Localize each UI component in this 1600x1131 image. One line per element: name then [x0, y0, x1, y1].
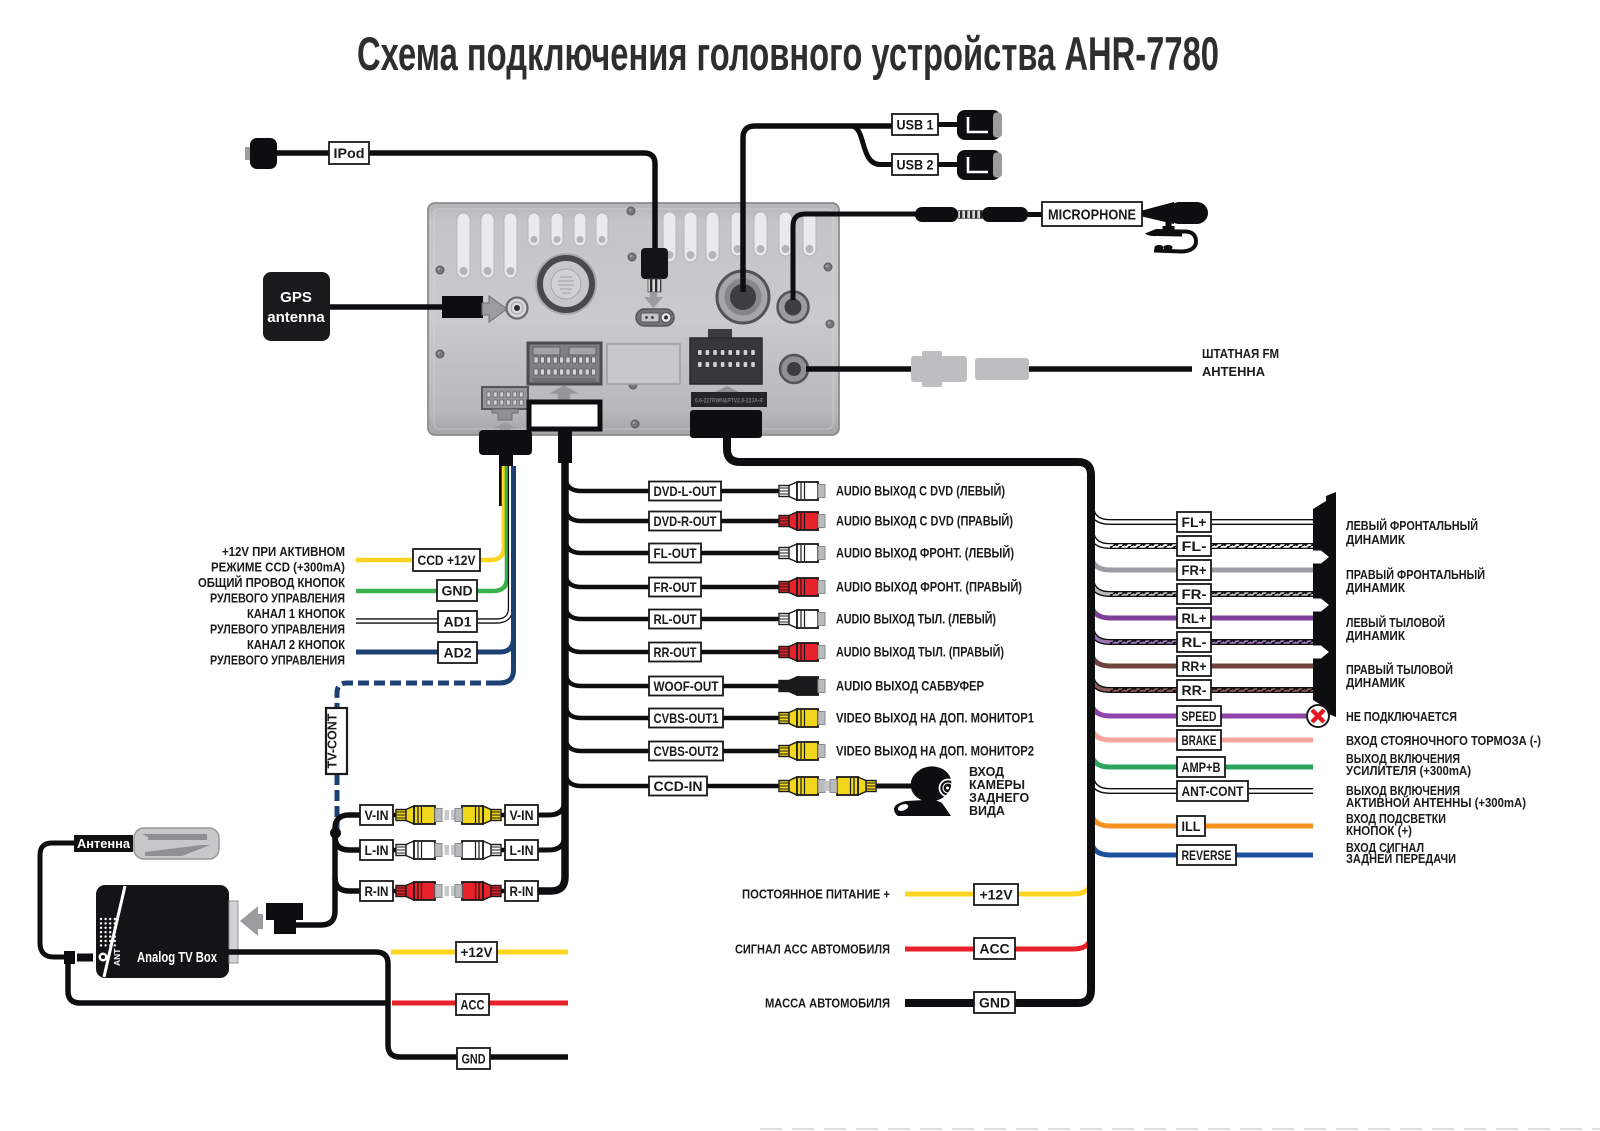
- svg-text:FR-: FR-: [1182, 586, 1207, 602]
- svg-text:AUDIO ВЫХОД С DVD (ЛЕВЫЙ): AUDIO ВЫХОД С DVD (ЛЕВЫЙ): [836, 484, 1005, 499]
- svg-text:ACC: ACC: [979, 941, 1009, 957]
- svg-text:VIDEO ВЫХОД НА ДОП. МОНИТОР1: VIDEO ВЫХОД НА ДОП. МОНИТОР1: [836, 711, 1034, 726]
- svg-text:FL-OUT: FL-OUT: [654, 545, 697, 561]
- svg-text:ОБЩИЙ ПРОВОД КНОПОК: ОБЩИЙ ПРОВОД КНОПОК: [198, 575, 345, 590]
- svg-text:ВХОД СТОЯНОЧНОГО ТОРМОЗА (-): ВХОД СТОЯНОЧНОГО ТОРМОЗА (-): [1346, 734, 1541, 748]
- svg-text:ILL: ILL: [1182, 818, 1201, 834]
- svg-text:FL-: FL-: [1182, 538, 1207, 554]
- svg-text:РУЛЕВОГО УПРАВЛЕНИЯ: РУЛЕВОГО УПРАВЛЕНИЯ: [210, 592, 345, 606]
- svg-text:ACC: ACC: [461, 997, 485, 1013]
- svg-text:FL+: FL+: [1182, 514, 1207, 530]
- svg-text:CCD +12V: CCD +12V: [418, 552, 477, 568]
- svg-text:DVD-L-OUT: DVD-L-OUT: [654, 483, 717, 499]
- svg-text:CCD-IN: CCD-IN: [654, 778, 703, 794]
- svg-text:RR-OUT: RR-OUT: [654, 644, 697, 660]
- svg-text:AUDIO ВЫХОД САБВУФЕР: AUDIO ВЫХОД САБВУФЕР: [836, 679, 984, 694]
- svg-text:AUDIO ВЫХОД ФРОНТ. (ЛЕВЫЙ): AUDIO ВЫХОД ФРОНТ. (ЛЕВЫЙ): [836, 546, 1014, 561]
- svg-text:СИГНАЛ ACC АВТОМОБИЛЯ: СИГНАЛ ACC АВТОМОБИЛЯ: [735, 942, 890, 957]
- svg-text:0.6-227RWN&PTV2.0-223A-R: 0.6-227RWN&PTV2.0-223A-R: [695, 399, 764, 405]
- svg-text:ДИНАМИК: ДИНАМИК: [1346, 629, 1405, 643]
- svg-text:ЗАДНЕЙ ПЕРЕДАЧИ: ЗАДНЕЙ ПЕРЕДАЧИ: [1346, 851, 1456, 866]
- svg-text:RL+: RL+: [1182, 610, 1207, 626]
- svg-text:SPEED: SPEED: [1182, 708, 1217, 724]
- svg-text:+12V: +12V: [461, 944, 494, 960]
- svg-text:antenna: antenna: [267, 309, 325, 326]
- svg-text:ПРАВЫЙ ТЫЛОВОЙ: ПРАВЫЙ ТЫЛОВОЙ: [1346, 662, 1453, 677]
- svg-text:ВИДА: ВИДА: [969, 804, 1005, 818]
- svg-text:USB 2: USB 2: [897, 157, 934, 173]
- svg-text:AUDIO ВЫХОД ТЫЛ. (ПРАВЫЙ): AUDIO ВЫХОД ТЫЛ. (ПРАВЫЙ): [836, 645, 1004, 660]
- svg-text:GND: GND: [462, 1051, 486, 1067]
- svg-text:ПОСТОЯННОЕ ПИТАНИЕ +: ПОСТОЯННОЕ ПИТАНИЕ +: [742, 887, 890, 902]
- svg-text:КНОПОК (+): КНОПОК (+): [1346, 824, 1412, 838]
- svg-text:FR-OUT: FR-OUT: [654, 579, 697, 595]
- svg-text:+12V: +12V: [979, 887, 1013, 903]
- svg-text:AUDIO ВЫХОД ТЫЛ. (ЛЕВЫЙ): AUDIO ВЫХОД ТЫЛ. (ЛЕВЫЙ): [836, 612, 996, 627]
- svg-text:DVD-R-OUT: DVD-R-OUT: [654, 513, 717, 529]
- svg-text:L-IN: L-IN: [510, 842, 534, 858]
- svg-text:RL-OUT: RL-OUT: [654, 611, 697, 627]
- svg-text:V-IN: V-IN: [365, 807, 389, 823]
- svg-text:MICROPHONE: MICROPHONE: [1048, 206, 1136, 223]
- svg-text:Схема подключения головного ус: Схема подключения головного устройства A…: [357, 27, 1219, 80]
- svg-text:РЕЖИМЕ CCD (+300mA): РЕЖИМЕ CCD (+300mA): [211, 561, 345, 575]
- svg-text:Антенна: Антенна: [77, 836, 131, 851]
- svg-text:GND: GND: [441, 583, 472, 599]
- svg-text:TV-CONT: TV-CONT: [326, 713, 340, 768]
- svg-text:ДИНАМИК: ДИНАМИК: [1346, 581, 1405, 595]
- svg-text:GND: GND: [979, 995, 1010, 1011]
- svg-text:КАНАЛ 1 КНОПОК: КАНАЛ 1 КНОПОК: [247, 607, 345, 621]
- svg-text:AUDIO ВЫХОД ФРОНТ. (ПРАВЫЙ): AUDIO ВЫХОД ФРОНТ. (ПРАВЫЙ): [836, 580, 1022, 595]
- svg-text:VIDEO ВЫХОД НА ДОП. МОНИТОР2: VIDEO ВЫХОД НА ДОП. МОНИТОР2: [836, 744, 1034, 759]
- svg-text:ЗАДНЕГО: ЗАДНЕГО: [969, 791, 1030, 805]
- svg-text:AUDIO ВЫХОД С DVD (ПРАВЫЙ): AUDIO ВЫХОД С DVD (ПРАВЫЙ): [836, 514, 1013, 529]
- svg-text:АНТЕННА: АНТЕННА: [1202, 365, 1265, 379]
- svg-text:BRAKE: BRAKE: [1182, 732, 1217, 748]
- svg-text:CVBS-OUT2: CVBS-OUT2: [654, 743, 719, 759]
- svg-text:L-IN: L-IN: [365, 842, 389, 858]
- svg-text:AMP+B: AMP+B: [1182, 759, 1221, 775]
- svg-text:WOOF-OUT: WOOF-OUT: [654, 678, 719, 694]
- svg-text:ШТАТНАЯ FM: ШТАТНАЯ FM: [1202, 347, 1279, 361]
- svg-text:+12V ПРИ АКТИВНОМ: +12V ПРИ АКТИВНОМ: [222, 545, 345, 559]
- svg-text:КАМЕРЫ: КАМЕРЫ: [969, 778, 1025, 792]
- svg-text:FR+: FR+: [1182, 562, 1207, 578]
- svg-text:АКТИВНОЙ АНТЕННЫ (+300mA): АКТИВНОЙ АНТЕННЫ (+300mA): [1346, 795, 1526, 810]
- svg-text:AD2: AD2: [443, 645, 471, 661]
- svg-text:ANT: ANT: [112, 948, 122, 966]
- svg-text:РУЛЕВОГО УПРАВЛЕНИЯ: РУЛЕВОГО УПРАВЛЕНИЯ: [210, 654, 345, 668]
- svg-text:ANT-CONT: ANT-CONT: [1182, 783, 1244, 799]
- svg-text:ДИНАМИК: ДИНАМИК: [1346, 676, 1405, 690]
- svg-text:НЕ ПОДКЛЮЧАЕТСЯ: НЕ ПОДКЛЮЧАЕТСЯ: [1346, 710, 1457, 724]
- svg-text:УСИЛИТЕЛЯ (+300mA): УСИЛИТЕЛЯ (+300mA): [1346, 764, 1471, 778]
- svg-text:GPS: GPS: [280, 289, 312, 306]
- svg-text:Analog TV Box: Analog TV Box: [137, 950, 217, 966]
- svg-text:RR+: RR+: [1182, 658, 1207, 674]
- svg-text:РУЛЕВОГО УПРАВЛЕНИЯ: РУЛЕВОГО УПРАВЛЕНИЯ: [210, 623, 345, 637]
- svg-text:ЛЕВЫЙ ФРОНТАЛЬНЫЙ: ЛЕВЫЙ ФРОНТАЛЬНЫЙ: [1346, 518, 1478, 533]
- svg-text:ЛЕВЫЙ ТЫЛОВОЙ: ЛЕВЫЙ ТЫЛОВОЙ: [1346, 615, 1445, 630]
- svg-text:CVBS-OUT1: CVBS-OUT1: [654, 710, 719, 726]
- svg-text:AD1: AD1: [443, 614, 471, 630]
- svg-text:ДИНАМИК: ДИНАМИК: [1346, 533, 1405, 547]
- svg-text:IPod: IPod: [334, 145, 365, 161]
- svg-text:КАНАЛ 2 КНОПОК: КАНАЛ 2 КНОПОК: [247, 638, 345, 652]
- svg-text:REVERSE: REVERSE: [1182, 847, 1232, 863]
- svg-text:RR-: RR-: [1182, 682, 1207, 698]
- svg-text:V-IN: V-IN: [510, 807, 534, 823]
- svg-text:R-IN: R-IN: [365, 883, 389, 899]
- svg-text:USB 1: USB 1: [897, 117, 934, 133]
- svg-text:RL-: RL-: [1182, 634, 1207, 650]
- svg-text:ПРАВЫЙ ФРОНТАЛЬНЫЙ: ПРАВЫЙ ФРОНТАЛЬНЫЙ: [1346, 567, 1485, 582]
- svg-text:ВХОД: ВХОД: [969, 765, 1004, 779]
- svg-text:МАССА АВТОМОБИЛЯ: МАССА АВТОМОБИЛЯ: [765, 996, 890, 1011]
- svg-text:R-IN: R-IN: [510, 883, 534, 899]
